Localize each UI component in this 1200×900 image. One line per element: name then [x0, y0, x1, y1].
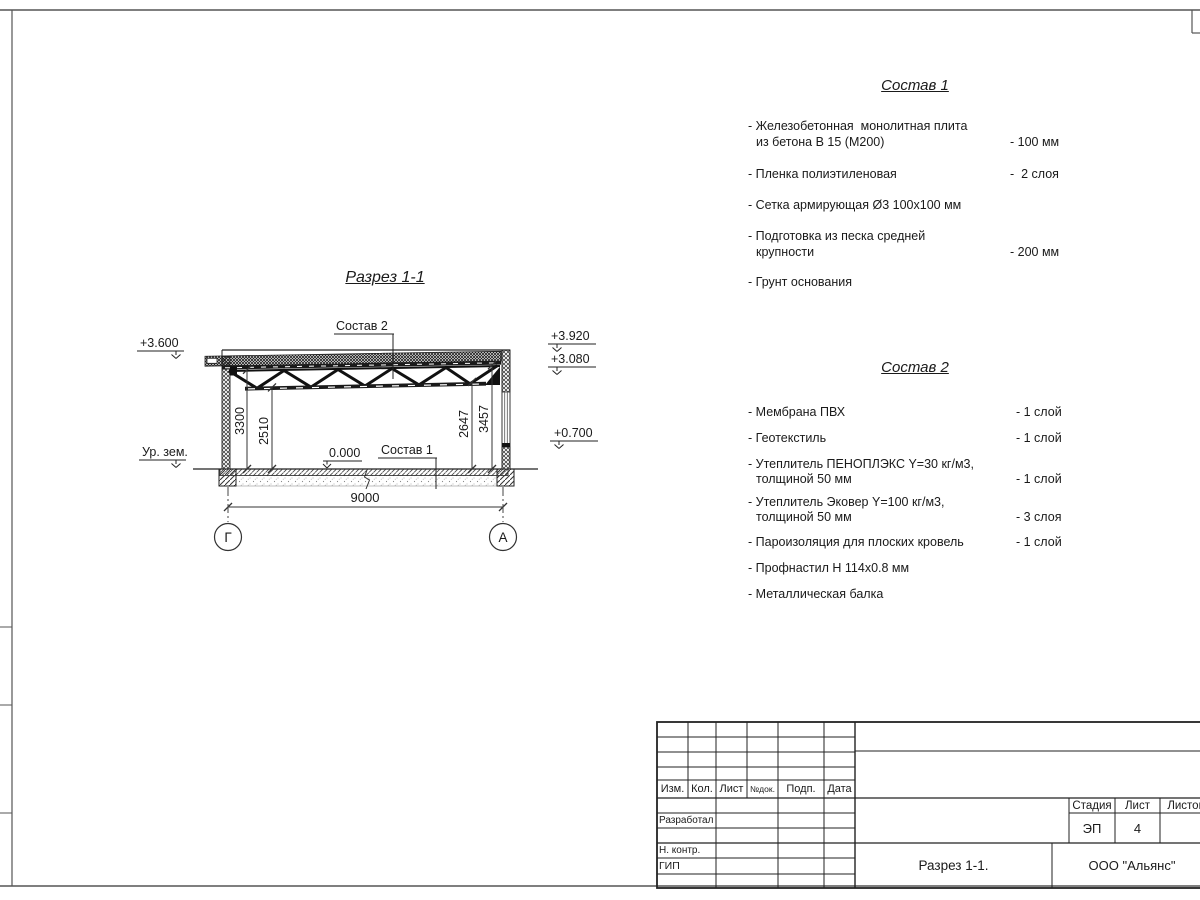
sostav1-ref-label: Состав 1: [381, 443, 433, 457]
titleblock-col-podp: Подп.: [778, 780, 824, 798]
zero-level-label: 0.000: [329, 446, 360, 460]
right-wall-sill: [502, 443, 510, 447]
sand-layer: [236, 476, 497, 487]
elevation-right-low: +0.700: [554, 426, 593, 440]
titleblock-col-data: Дата: [824, 780, 855, 798]
dim-2647: 2647: [457, 410, 471, 438]
list-item: - Пленка полиэтиленовая - 2 слоя: [748, 166, 1088, 182]
list-item: - Подготовка из песка среднейкрупности -…: [748, 228, 1088, 260]
list-item: - Геотекстиль - 1 слой: [748, 431, 1088, 446]
list-item: - Железобетонная монолитная плитаиз бето…: [748, 118, 1088, 150]
titleblock-col-ndok: №док.: [747, 780, 778, 798]
left-wall: [222, 357, 230, 470]
titleblock-company: ООО "Альянс": [1052, 843, 1200, 888]
titleblock-row-gip: ГИП: [659, 858, 716, 874]
foundation-left: [219, 469, 236, 486]
elevation-left-roof: +3.600: [140, 336, 179, 350]
titleblock-sheet-label: Лист: [1115, 798, 1160, 813]
elevation-parapet: +3.920: [551, 329, 590, 343]
axis-letter-right: А: [498, 530, 507, 545]
dim-3457: 3457: [477, 405, 491, 433]
titleblock-sheet-value: 4: [1115, 813, 1160, 843]
axis-letter-left: Г: [224, 530, 232, 545]
titleblock-col-izm: Изм.: [657, 780, 688, 798]
dim-2510: 2510: [257, 417, 271, 445]
list-item: - Грунт основания: [748, 274, 1088, 290]
truss: [230, 366, 500, 391]
ground-level-label: Ур. зем.: [142, 445, 188, 459]
titleblock-col-list: Лист: [716, 780, 747, 798]
titleblock-row-razrabotal: Разработал: [659, 813, 716, 828]
titleblock-doc-title: Разрез 1-1.: [855, 843, 1052, 888]
elevation-roof-bottom: +3.080: [551, 352, 590, 366]
dim-span: 9000: [351, 490, 380, 505]
drawing-sheet: 3300 2510 2647 3457 9000 Г А: [0, 0, 1200, 900]
sostav2-ref-label: Состав 2: [336, 319, 388, 333]
list-item: - Сетка армирующая Ø3 100х100 мм: [748, 197, 1088, 213]
titleblock-stage-value: ЭП: [1069, 813, 1115, 843]
sostav1-title: Состав 1: [830, 77, 1000, 94]
list-item: - Мембрана ПВХ - 1 слой: [748, 405, 1088, 420]
titleblock-row-nkontr: Н. контр.: [659, 843, 716, 858]
list-item: - Металлическая балка: [748, 587, 1088, 602]
list-item: - Утеплитель ПЕНОПЛЭКС Y=30 кг/м3,толщин…: [748, 457, 1088, 487]
sostav2-title: Состав 2: [830, 359, 1000, 376]
truss-left-support: [230, 367, 237, 376]
list-item: - Пароизоляция для плоских кровель - 1 с…: [748, 535, 1088, 550]
titleblock-col-kol: Кол.: [688, 780, 716, 798]
titleblock-stage-label: Стадия: [1069, 798, 1115, 813]
roof-edge-detail: [207, 358, 217, 363]
list-item: - Утеплитель Эковер Y=100 кг/м3,толщиной…: [748, 495, 1088, 525]
list-item: - Профнастил Н 114х0.8 мм: [748, 561, 1088, 576]
floor-slab: [220, 469, 508, 476]
section-title: Разрез 1-1: [300, 269, 470, 287]
titleblock-sheets-label: Листов: [1160, 798, 1200, 813]
dim-3300: 3300: [233, 407, 247, 435]
foundation-right: [497, 469, 514, 486]
